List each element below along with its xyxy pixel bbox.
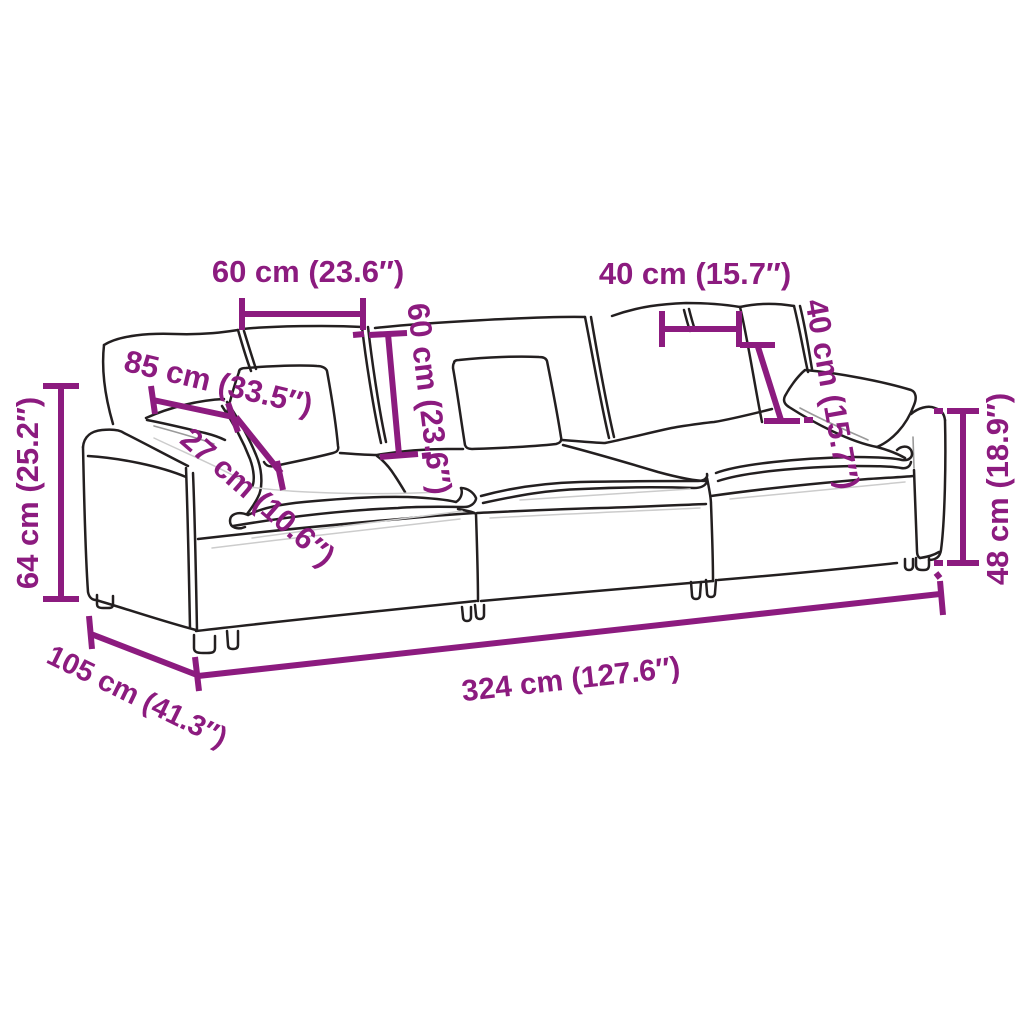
svg-text:40 cm (15.7″): 40 cm (15.7″) — [599, 256, 791, 291]
svg-text:64 cm (25.2″): 64 cm (25.2″) — [10, 397, 45, 589]
svg-text:60 cm (23.6″): 60 cm (23.6″) — [212, 254, 404, 289]
svg-text:48 cm (18.9″): 48 cm (18.9″) — [980, 393, 1015, 585]
